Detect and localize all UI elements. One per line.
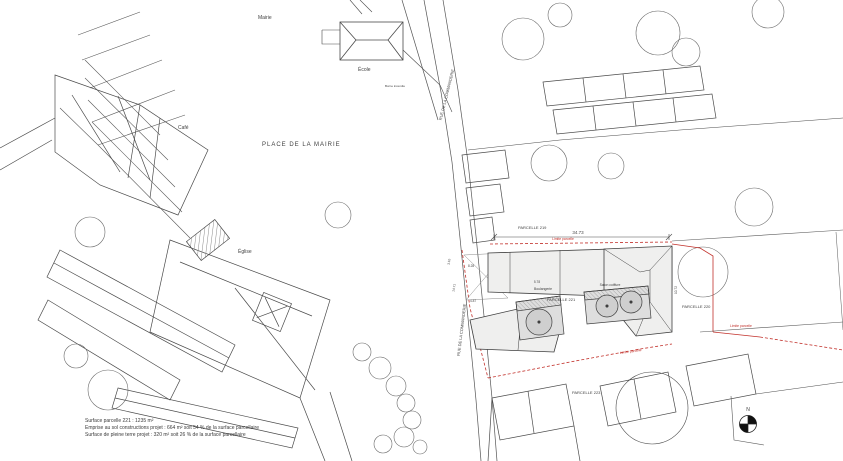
summary-line2: Emprise au sol constructions projet : 66… [85, 425, 259, 431]
dim-front: 34.73 [572, 230, 584, 235]
label-place-de-la-mairie: PLACE DE LA MAIRIE [262, 142, 341, 148]
label-parcelle-220: PARCELLE 220 [682, 304, 711, 309]
site-plan-page: N Mairie École Café PLACE DE LA MAIRIE É… [0, 0, 843, 461]
dim-5: 3.10 [447, 258, 452, 265]
label-parcelle-223: PARCELLE 223 [572, 390, 601, 395]
parcel-220-lines [672, 230, 843, 332]
limit-label-right: Limite parcelle [730, 324, 752, 328]
eglise-block [150, 219, 330, 398]
label-eglise: Église [238, 248, 252, 255]
north-label: N [746, 407, 750, 413]
dim-4: 14.71 [451, 283, 456, 292]
north-symbol: N [731, 396, 764, 445]
street-frontage-buildings [462, 150, 509, 243]
trees-center-row [353, 343, 427, 454]
label-hydrant: Borne incendie [385, 84, 405, 88]
summary-line1: Surface parcelle 221 : 1235 m² [85, 418, 154, 424]
dim-2: 8.28 [468, 264, 474, 268]
buildings-top-right [468, 66, 843, 150]
label-shop-right: Salon coiffure [600, 283, 621, 287]
limit-label-top: Limite parcelle [552, 237, 574, 241]
ecole-building [322, 0, 452, 112]
buildings-bottom-right [488, 354, 843, 461]
church-tower [252, 292, 291, 331]
summary-line3: Surface de pleine terre projet : 320 m² … [85, 432, 246, 438]
dim-6: 10.72 [674, 286, 678, 294]
label-street-top: RUE DE LA COMMANDERIE [438, 68, 456, 120]
site-plan-svg: N Mairie École Café PLACE DE LA MAIRIE É… [0, 0, 843, 461]
trees-top-right [502, 0, 784, 66]
label-shop-left: Boulangerie [534, 287, 552, 291]
label-ecole: École [358, 66, 371, 73]
limit-label-bottom: Limite parcelle [620, 348, 642, 355]
dim-1: 5.78 [534, 280, 540, 284]
label-cafe: Café [178, 125, 189, 131]
planter-left [516, 296, 564, 340]
dim-3: 4.87 [470, 299, 476, 303]
cafe-block [0, 75, 208, 215]
label-parcelle-221: PARCELLE 221 [547, 297, 576, 302]
label-parcelle-219: PARCELLE 219 [518, 225, 547, 230]
label-mairie: Mairie [258, 15, 272, 21]
planter-right [584, 286, 651, 324]
label-street-bottom: RUE DE LA COMMANDERIE [456, 303, 467, 356]
